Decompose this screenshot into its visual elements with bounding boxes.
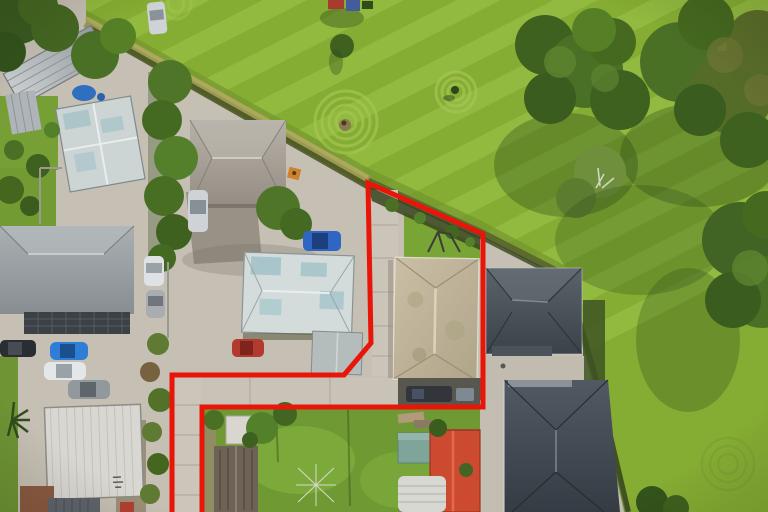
aerial-photo (0, 0, 768, 512)
aerial-scene (0, 0, 768, 512)
vignette-overlay (0, 0, 768, 512)
